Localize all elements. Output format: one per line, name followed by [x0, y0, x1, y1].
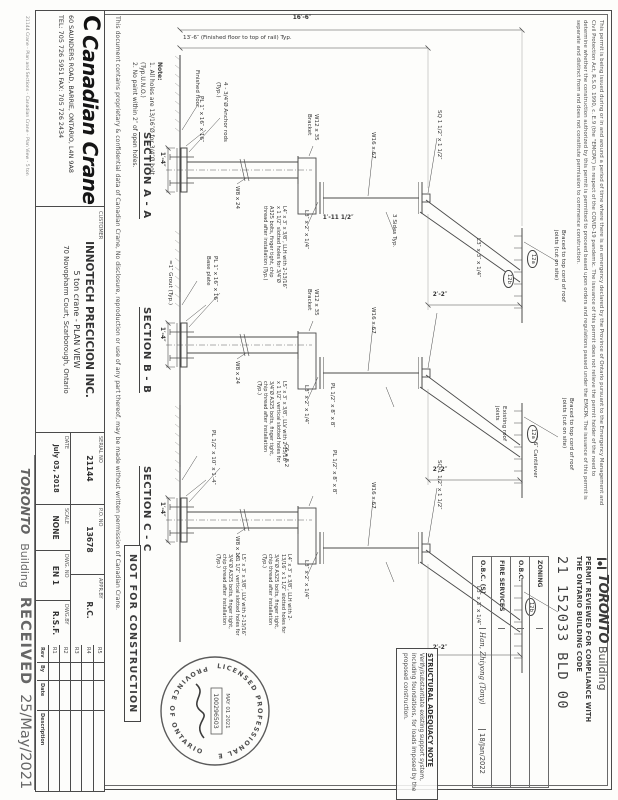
annotation-b-base: PL 1″ x 16″ x 16″ Base plate: [204, 256, 218, 316]
review-signature: Han, Zhiyong (Tony): [478, 629, 486, 730]
annotation-a-beam: W16 x 67: [369, 132, 376, 159]
annotation-c-bolt-note-l5: L5″ x 3″ x 3/8″, LLV with 2-13/16″ x 1 1…: [215, 554, 246, 636]
annotation-a-bracket: W12 x 35 Bracket: [305, 114, 319, 160]
revision-empty-cell: [94, 663, 104, 681]
revision-rev-label: R2: [60, 645, 70, 663]
annotation-dim-rail: 13′-6″ (Finished floor to top of rail) T…: [183, 35, 292, 42]
revision-empty-cell: [71, 681, 81, 711]
revision-header-rev: Rev: [37, 645, 47, 663]
revision-empty-cell: [60, 681, 70, 711]
revision-empty-cell: [60, 711, 70, 791]
company-address-line1: 60 SAUNDERS ROAD, BARRIE, ONTARIO, L4N 9…: [65, 15, 75, 202]
date-cell: DATE July 03, 2018: [36, 433, 70, 505]
review-discipline-label: FIRE SERVICES: [498, 557, 505, 629]
revision-row: R5: [93, 645, 104, 791]
received-stamp: TORONTO Building RECEIVED 25/May/2021: [17, 468, 33, 789]
annotation-a-tag1: 12a: [528, 250, 539, 268]
plan-review-row: ZONING: [530, 557, 548, 787]
revision-rev-label: R5: [94, 645, 104, 663]
canadian-crane-emblem-icon: C: [79, 15, 101, 31]
structural-note-title: STRUCTURAL ADEQUACY NOTE: [426, 653, 434, 795]
customer-name: INNOTECH PRECICION INC.: [83, 211, 95, 428]
annotation-b-col: W8 x 24: [233, 361, 240, 384]
received-toronto-logo-sub: Building: [18, 543, 31, 588]
toronto-logo-sub: Building: [596, 646, 609, 691]
revision-empty-cell: [71, 663, 81, 681]
annotation-a-dim-22: 2′-2″: [433, 292, 448, 299]
customer-description: 5 ton crane - PLAN VIEW: [72, 211, 81, 428]
date-label: DATE: [63, 436, 69, 501]
received-toronto-logo-text: TORONTO: [18, 468, 32, 534]
annotation-a-bolt-note: L4″ x 3″ x 3/8″, LLH with 2-13/16″ x 1 1…: [262, 206, 287, 292]
annotation-b-base-dim: 1′-4″: [158, 327, 165, 342]
revision-empty-cell: [49, 681, 59, 711]
customer-label: CUSTOMER: [97, 211, 103, 428]
dwgby-label: DWG.BY: [63, 604, 69, 642]
annotation-b-beam: W16 x 67: [369, 307, 376, 334]
review-discipline-label: ZONING: [536, 557, 543, 629]
toronto-building-permit-stamp: TORONTO Building PERMIT REVIEWED FOR COM…: [472, 556, 610, 790]
serial-label: SERIAL NO: [97, 436, 103, 501]
city-hall-icon: [596, 556, 609, 571]
revision-row: R3: [70, 645, 81, 791]
plan-review-row: O.B.C. (S)Han, Zhiyong (Tony)18/Jan/2022: [473, 557, 492, 787]
engineer-seal: LICENSED PROFESSIONAL ENGINEER PROVINCE …: [156, 652, 274, 770]
svg-text:PROVINCE OF ONTARIO: PROVINCE OF ONTARIO: [168, 665, 209, 757]
annotation-a-dim-1115: 1′-11 1/2″: [323, 215, 354, 222]
annotation-c-channel: C6 x 8.2: [282, 444, 289, 482]
appr-cell: APPR.BY R.C.: [70, 575, 104, 645]
annotation-c-plate: PL 1/2″ x 8″ x 8″: [330, 450, 337, 498]
not-for-construction-box: NOT FOR CONSTRUCTION: [124, 545, 141, 722]
revision-header-row: RevByDateDescription: [37, 645, 47, 791]
toronto-logo-text: TORONTO: [595, 574, 610, 643]
company-name: Canadian Crane: [78, 35, 102, 204]
revision-empty-cell: [71, 711, 81, 791]
drawing-sheet: This permit is being issued during or in…: [0, 0, 618, 800]
seal-date: MAY 01 2021: [224, 693, 230, 728]
revision-empty-cell: [49, 711, 59, 791]
annotation-a-anchor-rods: 4 - 3/4″Ø Anchor rods (Typ.): [214, 82, 228, 146]
date-value: July 03, 2018: [52, 436, 60, 501]
annotation-a-rail: SQ 1 1/2″ x 1 1/2″: [435, 110, 442, 164]
annotation-a-angle: L3″ x 2″ x 1/4″: [302, 210, 309, 252]
revision-empty-cell: [49, 663, 59, 681]
scanned-drawing-page: This permit is being issued during or in…: [0, 0, 618, 800]
annotation-c-base-dim: 1′-4″: [158, 502, 165, 517]
toronto-logo: TORONTO Building: [595, 556, 610, 790]
annotation-a-base-dim: 1′-4″: [158, 152, 165, 167]
structural-adequacy-note: STRUCTURAL ADEQUACY NOTE Verify/substant…: [396, 648, 438, 800]
customer-address: 70 Novopharm Court, Scarborough, Ontario: [62, 211, 70, 428]
permit-review-line2: THE ONTARIO BUILDING CODE: [574, 556, 583, 790]
revision-table: R5R4R3R2R1RevByDateDescription: [36, 645, 104, 791]
plan-review-row: FIRE SERVICES: [492, 557, 511, 787]
seal-licence-number: 100296503: [212, 693, 219, 728]
company-address-line2: TEL: 705 726 5951 FAX: 705 726 2434: [56, 15, 66, 202]
annotation-b-cant: 2′-6″ Cantilever: [531, 435, 538, 489]
annotation-c-base: PL 1/2″ x 10″ x 1′-4″: [209, 430, 216, 490]
revision-header-date: Date: [37, 681, 47, 711]
serial-value: 21144: [85, 436, 94, 501]
dwgno-cell: DWG. NO EN 1: [36, 551, 70, 601]
annotation-a-tag2: 12b: [504, 270, 515, 288]
po-value: 13678: [85, 508, 94, 571]
scale-label: SCALE: [63, 508, 69, 547]
title-block: C Canadian Crane 60 SAUNDERS ROAD, BARRI…: [35, 10, 105, 792]
annotation-c-angle: L3″ x 2″ x 1/4″: [302, 560, 309, 602]
dwgby-cell: DWG.BY R.S.F.: [36, 601, 70, 645]
serial-cell: SERIAL NO 21144: [70, 433, 104, 505]
revision-empty-cell: [60, 663, 70, 681]
received-date: 25/May/2021: [17, 694, 33, 789]
annotation-b-grout: ≈1″ Grout (Typ.): [166, 260, 173, 318]
revision-row: R4: [81, 645, 92, 791]
revision-row: R1: [48, 645, 59, 791]
revision-rev-label: R1: [49, 645, 59, 663]
annotation-b-roof: Existing roof joists: [493, 406, 507, 456]
revision-empty-cell: [82, 663, 92, 681]
annotation-b-tag: 12a: [528, 425, 539, 443]
structural-note-body: Verify/substantiate existing support sys…: [401, 653, 424, 795]
annotation-c-rail: SQ 1 1/2″ x 1 1/2″: [435, 460, 442, 514]
dwgby-value: R.S.F.: [51, 604, 60, 642]
annotation-a-weld: 3 Sides Typ.: [390, 214, 397, 256]
plan-review-row: O.B.C.: [511, 557, 530, 787]
scale-cell: SCALE NONE: [36, 505, 70, 551]
customer-cell: CUSTOMER INNOTECH PRECICION INC. 5 ton c…: [36, 207, 104, 433]
canadian-crane-logo-cell: C Canadian Crane 60 SAUNDERS ROAD, BARRI…: [36, 11, 104, 207]
revision-header-description: Description: [37, 711, 47, 791]
review-date: 18/Jan/2022: [478, 730, 486, 787]
annotation-b-angle: L3″ x 2″ x 1/4″: [302, 385, 309, 427]
permit-review-line1: PERMIT REVIEWED FOR COMPLIANCE WITH: [583, 556, 592, 790]
annotation-b-braced-roof: Braced to top cord of roof joists (cut o…: [560, 398, 574, 474]
annotation-b-plate: PL 1/2″ x 8″ x 8″: [328, 383, 335, 431]
plan-review-table: ZONINGO.B.C.FIRE SERVICESO.B.C. (S)Han, …: [472, 556, 549, 788]
revision-header-by: By: [37, 663, 47, 681]
review-discipline-label: O.B.C. (S): [479, 557, 486, 629]
review-discipline-label: O.B.C.: [517, 557, 524, 629]
annotation-a-braced-roof: Braced to top cord of roof joists (cut o…: [552, 230, 566, 306]
revision-rev-label: R3: [71, 645, 81, 663]
permit-number: 21 152033 BLD 00: [554, 556, 570, 790]
annotation-a-brace: L3″ x 3″ x 1/4″: [474, 238, 481, 280]
revision-empty-cell: [82, 711, 92, 791]
revision-empty-cell: [94, 711, 104, 791]
scale-value: NONE: [51, 508, 60, 547]
appr-value: R.C.: [85, 578, 94, 642]
seal-signature: [196, 684, 204, 738]
revision-row: R2: [59, 645, 70, 791]
appr-label: APPR.BY: [97, 578, 103, 642]
po-label: P.O. NO: [97, 508, 103, 571]
annotation-a-base: PL 1″ x 16″ x 16″: [197, 96, 204, 150]
po-cell: P.O. NO 13678: [70, 505, 104, 575]
annotation-c-bolt-note-l4: L4″ x 3″ x 3/8″, LLH with 2-13/16″ x 1 1…: [261, 554, 292, 636]
annotation-a-col: W8 x 24: [233, 186, 240, 209]
title-block-grid: SERIAL NO 21144 P.O. NO 13678 APPR.BY R.…: [36, 433, 104, 645]
dwgno-value: EN 1: [51, 554, 60, 597]
revision-empty-cell: [82, 681, 92, 711]
annotation-c-beam: W16 x 67: [369, 482, 376, 509]
annotation-dim-overall: 16′-6″: [293, 15, 312, 22]
received-status: RECEIVED: [17, 597, 33, 685]
dwgno-label: DWG. NO: [63, 554, 69, 597]
revision-rev-label: R4: [82, 645, 92, 663]
seal-arc-bottom: PROVINCE OF ONTARIO: [168, 665, 209, 757]
revision-empty-cell: [94, 681, 104, 711]
annotation-b-bracket: W12 x 35 Bracket: [305, 289, 319, 335]
